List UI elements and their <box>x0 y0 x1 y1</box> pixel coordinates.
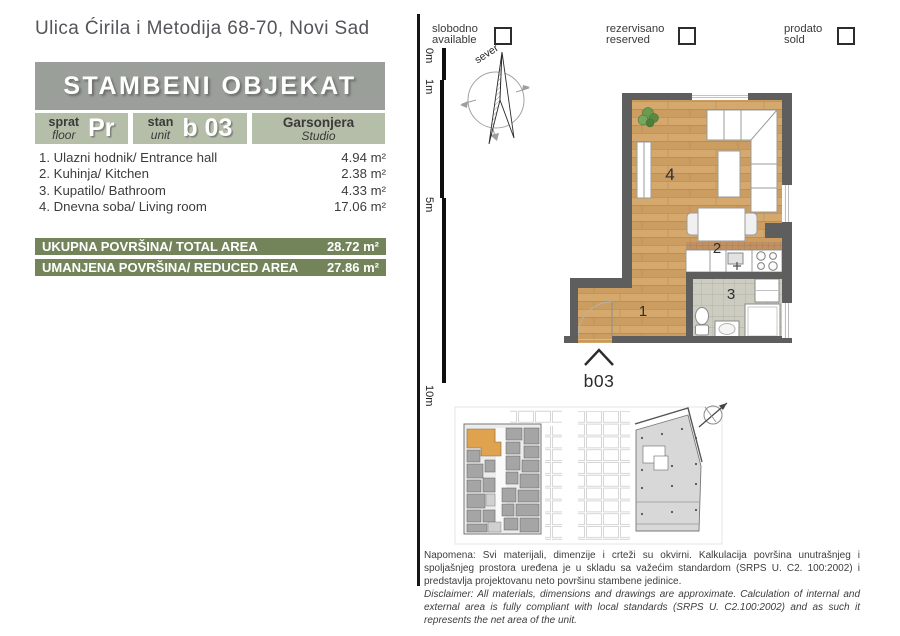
total-area-value: 28.72 m² <box>327 239 379 254</box>
scale-mark-10m: 10m <box>423 385 435 406</box>
building-header: STAMBENI OBJEKAT <box>35 62 385 110</box>
room-area: 4.94 m² <box>341 150 386 166</box>
coffee-table-icon <box>718 151 740 197</box>
legend-sold-en: sold <box>784 35 822 46</box>
compass-needle <box>500 52 514 138</box>
room-number-hall: 1 <box>639 303 647 320</box>
sink-icon <box>728 253 743 264</box>
disclaimer: Napomena: Svi materijali, dimenzije i cr… <box>424 549 860 627</box>
north-compass-icon: sever <box>456 42 530 152</box>
room-area: 17.06 m² <box>334 199 386 215</box>
toilet-icon <box>696 308 709 325</box>
room-number-living: 4 <box>665 165 674 184</box>
entrance-arrow-icon <box>585 350 613 365</box>
legend-reserved-en: reserved <box>606 35 664 46</box>
floor-label-en: floor <box>49 129 80 141</box>
site-plan <box>450 398 740 548</box>
real-estate-flyer-page: Ulica Ćirila i Metodija 68-70, Novi Sad … <box>0 0 900 636</box>
room-number-bathroom: 3 <box>727 286 735 303</box>
room-label: 4. Dnevna soba/ Living room <box>39 199 207 215</box>
unit-type-box: Garsonjera Studio <box>252 113 385 144</box>
right-building <box>635 408 702 531</box>
room-label: 1. Ulazni hodnik/ Entrance hall <box>39 150 217 166</box>
floorplan: 4 2 3 1 b03 <box>558 85 803 397</box>
scale-mark-5m: 5m <box>423 197 435 212</box>
reduced-area-value: 27.86 m² <box>327 260 379 275</box>
room-label: 3. Kupatilo/ Bathroom <box>39 183 166 199</box>
unit-box: stan unit b 03 <box>133 113 247 144</box>
building-header-label: STAMBENI OBJEKAT <box>63 72 356 101</box>
unit-code-label: b03 <box>584 371 615 391</box>
total-area-bar: UKUPNA POVRŠINA/ TOTAL AREA 28.72 m² <box>35 238 386 255</box>
room-row-kitchen: 2. Kuhinja/ Kitchen 2.38 m² <box>35 166 386 182</box>
disclaimer-serbian: Napomena: Svi materijali, dimenzije i cr… <box>424 549 860 588</box>
legend-sold: prodato sold <box>784 24 822 46</box>
unit-value: b 03 <box>182 114 232 143</box>
address-title: Ulica Ćirila i Metodija 68-70, Novi Sad <box>35 18 405 40</box>
scale-mark-1m: 1m <box>423 79 435 94</box>
legend-reserved: rezervisano reserved <box>606 24 664 46</box>
floor-value: Pr <box>88 114 114 143</box>
room-row-living: 4. Dnevna soba/ Living room 17.06 m² <box>35 199 386 215</box>
north-label: sever <box>473 42 501 66</box>
room-area: 4.33 m² <box>341 183 386 199</box>
reduced-area-bar: UMANJENA POVRŠINA/ REDUCED AREA 27.86 m² <box>35 259 386 276</box>
toilet-tank <box>696 325 709 335</box>
vertical-divider <box>417 14 420 586</box>
room-row-hall: 1. Ulazni hodnik/ Entrance hall 4.94 m² <box>35 150 386 166</box>
unit-label-en: unit <box>148 129 174 141</box>
unit-labels: stan unit <box>148 116 174 141</box>
left-building <box>464 424 541 534</box>
scale-bar-segment <box>440 80 444 198</box>
total-area-label: UKUPNA POVRŠINA/ TOTAL AREA <box>42 239 258 254</box>
floor-labels: sprat floor <box>49 116 80 141</box>
dining-table-icon <box>698 208 745 241</box>
unit-type-en: Studio <box>301 130 335 142</box>
reserved-checkbox <box>678 27 696 45</box>
room-area: 2.38 m² <box>341 166 386 182</box>
shower-icon <box>745 304 780 339</box>
scale-mark-0m: 0m <box>423 48 435 63</box>
scale-bar-segment <box>442 198 446 383</box>
reduced-area-label: UMANJENA POVRŠINA/ REDUCED AREA <box>42 260 298 275</box>
room-number-kitchen: 2 <box>713 240 721 257</box>
scale-bar-segment <box>442 48 446 80</box>
floor-box: sprat floor Pr <box>35 113 128 144</box>
room-row-bathroom: 3. Kupatilo/ Bathroom 4.33 m² <box>35 183 386 199</box>
unit-type-sr: Garsonjera <box>283 116 354 130</box>
disclaimer-english: Disclaimer: All materials, dimensions an… <box>424 588 860 627</box>
sold-checkbox <box>837 27 855 45</box>
room-label: 2. Kuhinja/ Kitchen <box>39 166 149 182</box>
room-list: 1. Ulazni hodnik/ Entrance hall 4.94 m² … <box>35 150 386 215</box>
kitchen-backsplash <box>686 242 782 250</box>
